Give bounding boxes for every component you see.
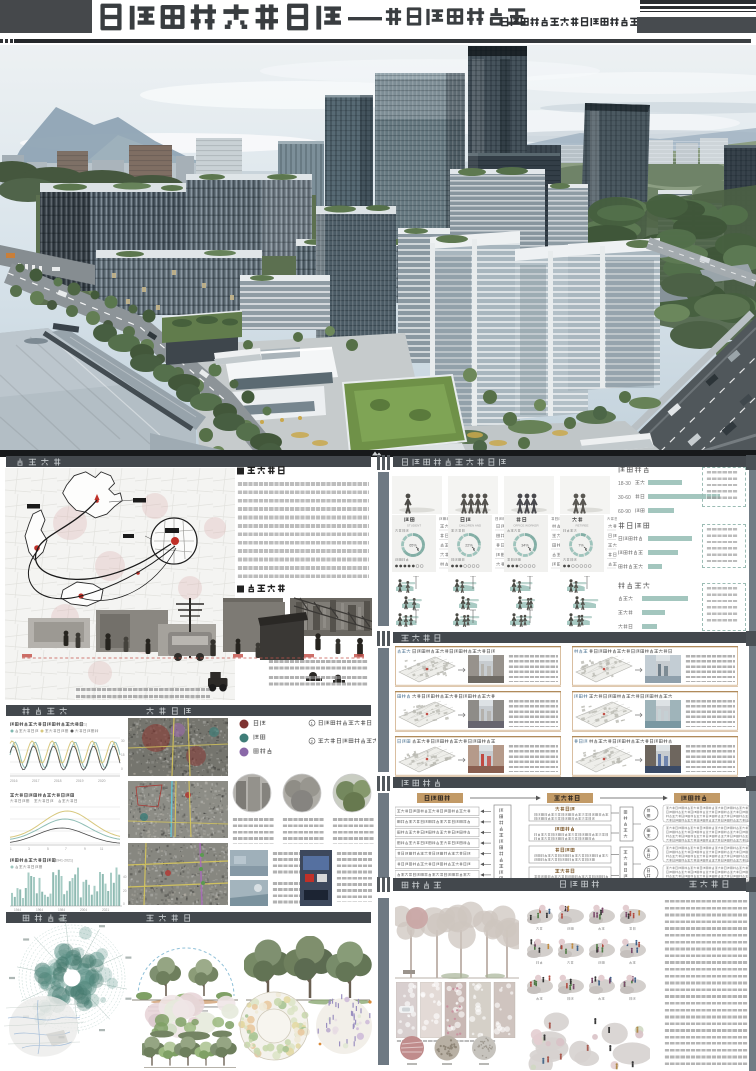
svg-text:7%: 7%: [578, 544, 584, 548]
svg-text:9: 9: [84, 847, 86, 851]
svg-text:15: 15: [121, 753, 125, 757]
svg-text:STUDENT: STUDENT: [407, 524, 421, 528]
svg-text:30: 30: [121, 739, 125, 743]
svg-text:2020: 2020: [98, 779, 106, 783]
svg-text:5: 5: [47, 847, 49, 851]
svg-text:1: 1: [10, 847, 12, 851]
svg-text:3: 3: [28, 847, 30, 851]
svg-text:0: 0: [123, 902, 125, 906]
svg-text:2016: 2016: [10, 779, 18, 783]
svg-text:11: 11: [100, 847, 104, 851]
svg-text:2019: 2019: [76, 779, 84, 783]
svg-text:60-90: 60-90: [618, 509, 631, 515]
svg-text:RETIREE: RETIREE: [575, 524, 588, 528]
svg-text:1: 1: [311, 721, 314, 726]
svg-text:2: 2: [311, 739, 314, 744]
svg-text:20: 20: [123, 889, 127, 893]
svg-text:30-60: 30-60: [618, 495, 631, 501]
svg-text:OFFICE WORKER: OFFICE WORKER: [513, 524, 539, 528]
svg-text:18-30: 18-30: [618, 481, 631, 487]
svg-text:(1941-2021): (1941-2021): [54, 859, 73, 863]
svg-text:7: 7: [65, 847, 67, 851]
svg-text:(2016-2021): (2016-2021): [68, 723, 87, 727]
svg-text:2017: 2017: [32, 779, 40, 783]
svg-text:CHILDREN AND: CHILDREN AND: [459, 524, 482, 528]
svg-text:2018: 2018: [54, 779, 62, 783]
svg-text:0: 0: [121, 767, 123, 771]
svg-text:40: 40: [123, 875, 127, 879]
